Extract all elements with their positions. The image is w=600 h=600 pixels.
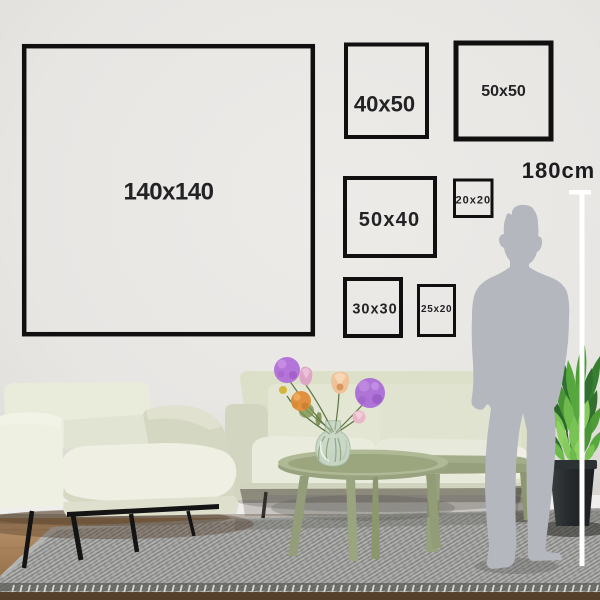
svg-text:50x50: 50x50 <box>481 83 526 100</box>
svg-text:40x50: 40x50 <box>354 92 415 117</box>
svg-text:50x40: 50x40 <box>359 209 421 231</box>
svg-text:140x140: 140x140 <box>124 179 214 206</box>
svg-text:20x20: 20x20 <box>456 194 492 206</box>
svg-text:25x20: 25x20 <box>421 304 452 315</box>
svg-text:180cm: 180cm <box>522 158 596 183</box>
svg-text:30x30: 30x30 <box>352 301 397 317</box>
